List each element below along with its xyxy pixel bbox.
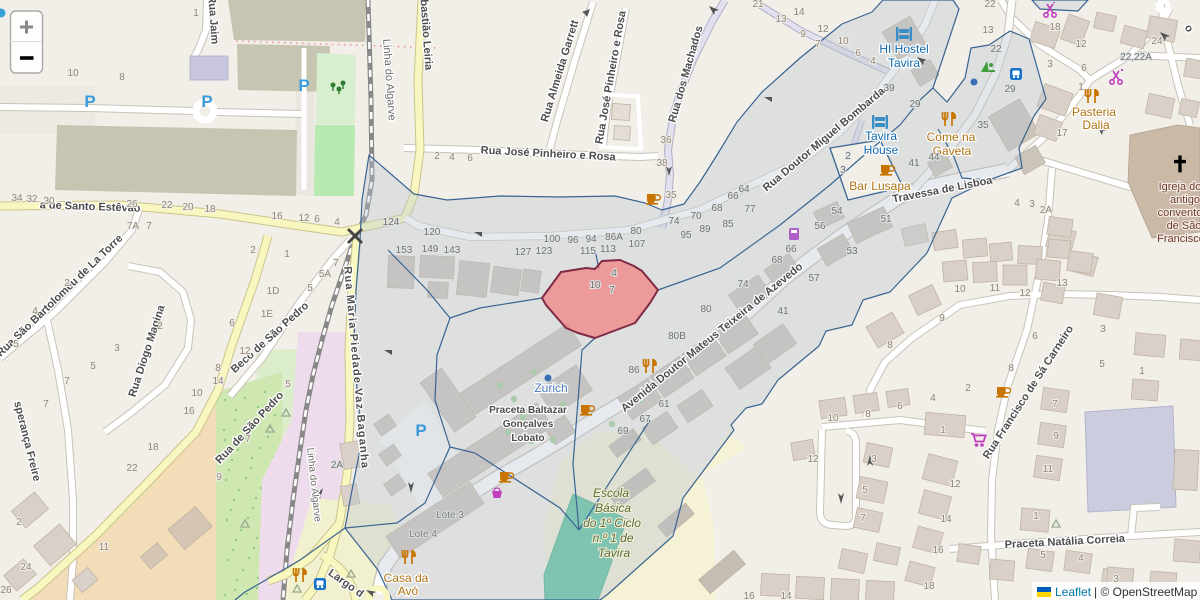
svg-text:do 1º Ciclo: do 1º Ciclo <box>583 516 641 530</box>
svg-text:80B: 80B <box>668 331 686 342</box>
svg-text:Tavira: Tavira <box>598 546 631 560</box>
svg-text:1D: 1D <box>267 286 280 297</box>
svg-text:22: 22 <box>984 0 996 10</box>
svg-text:68: 68 <box>771 255 783 266</box>
svg-text:4: 4 <box>611 268 617 279</box>
svg-text:7: 7 <box>245 434 251 445</box>
svg-text:Gonçalves: Gonçalves <box>503 419 554 430</box>
svg-text:17: 17 <box>1056 128 1068 139</box>
svg-text:10: 10 <box>827 413 839 424</box>
svg-text:Avó: Avó <box>398 584 419 598</box>
svg-text:11: 11 <box>990 283 1001 294</box>
svg-text:2: 2 <box>434 151 440 162</box>
svg-text:7: 7 <box>860 513 866 524</box>
svg-text:89: 89 <box>699 224 711 235</box>
svg-text:6: 6 <box>1032 331 1038 342</box>
svg-text:3: 3 <box>1047 59 1053 70</box>
svg-text:10: 10 <box>837 36 849 47</box>
svg-text:13: 13 <box>775 14 787 25</box>
svg-text:8: 8 <box>887 340 893 351</box>
svg-text:74: 74 <box>737 279 749 290</box>
svg-text:7: 7 <box>609 285 615 296</box>
svg-text:3: 3 <box>1100 324 1106 335</box>
svg-text:6: 6 <box>229 318 235 329</box>
svg-text:4: 4 <box>1078 553 1084 564</box>
svg-text:30: 30 <box>43 196 55 207</box>
svg-text:5: 5 <box>862 485 868 496</box>
svg-text:5: 5 <box>285 379 291 390</box>
svg-text:5: 5 <box>1099 359 1105 370</box>
svg-text:16: 16 <box>743 591 755 600</box>
svg-text:100: 100 <box>544 234 561 245</box>
svg-text:66: 66 <box>785 244 797 255</box>
svg-text:153: 153 <box>396 245 413 256</box>
svg-text:3: 3 <box>840 165 846 176</box>
svg-text:20: 20 <box>182 202 194 213</box>
svg-text:10: 10 <box>954 284 966 295</box>
svg-text:Escola: Escola <box>593 486 629 500</box>
svg-text:5: 5 <box>13 339 19 350</box>
svg-text:18: 18 <box>1049 22 1061 33</box>
svg-text:24: 24 <box>20 562 32 573</box>
svg-text:✝: ✝ <box>1171 152 1189 177</box>
svg-text:1: 1 <box>193 8 199 19</box>
svg-text:12: 12 <box>1075 39 1087 50</box>
svg-text:6: 6 <box>855 48 861 59</box>
svg-text:22,22A: 22,22A <box>1120 52 1152 63</box>
svg-text:7: 7 <box>815 39 821 50</box>
svg-text:39: 39 <box>883 83 895 94</box>
svg-text:64: 64 <box>738 184 750 195</box>
svg-text:24: 24 <box>1151 36 1163 47</box>
svg-text:10: 10 <box>67 68 79 79</box>
svg-text:2: 2 <box>157 321 163 332</box>
svg-text:9: 9 <box>939 313 945 324</box>
svg-text:P: P <box>201 92 212 111</box>
svg-text:14: 14 <box>780 591 792 600</box>
svg-text:5: 5 <box>307 283 313 294</box>
svg-text:41: 41 <box>777 306 789 317</box>
svg-text:56: 56 <box>814 221 826 232</box>
svg-text:2: 2 <box>16 517 22 528</box>
svg-text:8: 8 <box>865 409 871 420</box>
svg-text:70: 70 <box>690 211 702 222</box>
svg-text:12: 12 <box>239 346 251 357</box>
svg-text:14: 14 <box>212 376 224 387</box>
svg-text:1: 1 <box>1139 366 1145 377</box>
svg-text:6: 6 <box>467 153 473 164</box>
svg-text:53: 53 <box>846 246 858 257</box>
svg-text:7: 7 <box>43 399 49 410</box>
svg-text:26: 26 <box>126 199 138 210</box>
svg-text:P: P <box>84 92 95 111</box>
svg-text:66: 66 <box>727 191 739 202</box>
svg-text:n.º 1 de: n.º 1 de <box>592 531 633 545</box>
svg-text:6: 6 <box>1081 63 1087 74</box>
svg-text:68: 68 <box>711 203 723 214</box>
svg-text:Lote 4: Lote 4 <box>409 529 437 540</box>
svg-text:4: 4 <box>870 56 876 67</box>
svg-text:House: House <box>864 143 899 157</box>
svg-text:convento: convento <box>1158 207 1200 219</box>
svg-text:12: 12 <box>949 479 961 490</box>
svg-text:Tavira: Tavira <box>888 56 920 70</box>
svg-text:P: P <box>298 76 309 95</box>
svg-text:9: 9 <box>800 29 806 40</box>
svg-text:8: 8 <box>1008 363 1014 374</box>
svg-text:44: 44 <box>928 152 940 163</box>
svg-text:35: 35 <box>665 190 677 201</box>
svg-text:11: 11 <box>99 542 110 553</box>
svg-text:4: 4 <box>334 217 340 228</box>
svg-text:| © OpenStreetMap: | © OpenStreetMap <box>1094 585 1198 599</box>
svg-text:16: 16 <box>271 211 283 222</box>
svg-text:54: 54 <box>831 206 843 217</box>
svg-text:29: 29 <box>1004 84 1016 95</box>
svg-text:2: 2 <box>965 383 971 394</box>
svg-text:21: 21 <box>752 0 764 10</box>
svg-text:13: 13 <box>982 25 994 36</box>
svg-text:18: 18 <box>923 581 935 592</box>
svg-text:8: 8 <box>215 363 221 374</box>
svg-text:12: 12 <box>807 454 819 465</box>
svg-text:5: 5 <box>1040 550 1046 561</box>
svg-text:32: 32 <box>26 194 38 205</box>
svg-text:7: 7 <box>333 258 339 269</box>
svg-text:22: 22 <box>126 463 138 474</box>
svg-text:Pasteria: Pasteria <box>1072 105 1116 119</box>
svg-text:4: 4 <box>1014 198 1020 209</box>
svg-text:12: 12 <box>1019 288 1031 299</box>
svg-text:85: 85 <box>722 219 734 230</box>
svg-text:5A: 5A <box>319 269 332 280</box>
svg-text:4: 4 <box>930 393 936 404</box>
svg-text:Lote 3: Lote 3 <box>436 510 464 521</box>
svg-text:120: 120 <box>424 227 441 238</box>
svg-text:1: 1 <box>284 249 290 260</box>
svg-text:127: 127 <box>515 247 532 258</box>
svg-text:124: 124 <box>383 217 400 228</box>
svg-text:14: 14 <box>793 7 805 18</box>
svg-text:12: 12 <box>817 24 829 35</box>
svg-text:57: 57 <box>808 273 820 284</box>
svg-text:4: 4 <box>449 152 455 163</box>
svg-text:115: 115 <box>580 246 596 257</box>
svg-text:10: 10 <box>191 388 203 399</box>
svg-text:3: 3 <box>1029 199 1035 210</box>
svg-text:Tavira: Tavira <box>865 129 897 143</box>
svg-text:9: 9 <box>216 472 222 483</box>
svg-text:18: 18 <box>147 442 159 453</box>
svg-text:6: 6 <box>314 214 320 225</box>
svg-text:9: 9 <box>1053 431 1059 442</box>
svg-text:86: 86 <box>628 365 640 376</box>
svg-text:Francisco: Francisco <box>1157 233 1200 245</box>
svg-text:1: 1 <box>940 425 946 436</box>
svg-text:69: 69 <box>617 426 629 437</box>
svg-text:Praceta Baltazar: Praceta Baltazar <box>489 405 567 416</box>
svg-text:1: 1 <box>1033 511 1039 522</box>
svg-text:3: 3 <box>114 343 120 354</box>
svg-text:77: 77 <box>744 204 756 215</box>
svg-text:143: 143 <box>444 245 461 256</box>
svg-text:80: 80 <box>700 304 712 315</box>
svg-text:95: 95 <box>680 230 692 241</box>
svg-text:12: 12 <box>298 213 310 224</box>
svg-text:94: 94 <box>585 234 597 245</box>
svg-text:35: 35 <box>977 120 989 131</box>
svg-text:26: 26 <box>0 585 12 596</box>
svg-text:22: 22 <box>161 200 173 211</box>
svg-text:14: 14 <box>940 514 952 525</box>
svg-text:de São: de São <box>1167 220 1200 232</box>
svg-text:61: 61 <box>658 399 670 410</box>
svg-text:HI Hostel: HI Hostel <box>879 42 928 56</box>
svg-text:7: 7 <box>64 376 70 387</box>
svg-text:antigo: antigo <box>1170 194 1200 206</box>
svg-text:4: 4 <box>32 306 38 317</box>
svg-text:7A: 7A <box>127 221 140 232</box>
svg-text:41: 41 <box>908 158 920 169</box>
svg-text:5: 5 <box>90 361 96 372</box>
svg-text:1E: 1E <box>261 309 274 320</box>
svg-text:96: 96 <box>567 235 579 246</box>
svg-text:16: 16 <box>932 545 944 556</box>
svg-text:11: 11 <box>1043 464 1054 475</box>
svg-text:51: 51 <box>880 214 892 225</box>
svg-text:Casa da: Casa da <box>384 571 429 585</box>
svg-text:34: 34 <box>11 193 23 204</box>
svg-text:Dalia: Dalia <box>1082 118 1110 132</box>
svg-text:18: 18 <box>204 204 216 215</box>
svg-text:3: 3 <box>871 454 877 465</box>
svg-text:80: 80 <box>630 226 642 237</box>
svg-text:16: 16 <box>183 406 195 417</box>
svg-text:Lobato: Lobato <box>511 433 544 444</box>
svg-text:7: 7 <box>1052 399 1058 410</box>
svg-text:74: 74 <box>668 216 680 227</box>
svg-text:Leaflet: Leaflet <box>1055 585 1092 599</box>
svg-text:149: 149 <box>422 244 439 255</box>
svg-text:10: 10 <box>589 280 601 291</box>
svg-text:38: 38 <box>656 158 668 169</box>
svg-text:2A: 2A <box>331 460 344 471</box>
svg-text:22: 22 <box>990 44 1002 55</box>
svg-text:107: 107 <box>629 239 646 250</box>
svg-text:Zurich: Zurich <box>534 381 567 395</box>
svg-text:Come na: Come na <box>927 130 976 144</box>
svg-text:13: 13 <box>1056 278 1068 289</box>
svg-text:86A: 86A <box>605 232 623 243</box>
svg-text:8: 8 <box>119 72 125 83</box>
svg-text:P: P <box>415 421 426 440</box>
svg-text:29: 29 <box>909 99 921 110</box>
svg-text:Igreja do: Igreja do <box>1159 181 1200 193</box>
svg-text:2A: 2A <box>1040 205 1053 216</box>
svg-text:6: 6 <box>897 401 903 412</box>
svg-text:Básica: Básica <box>595 501 631 515</box>
svg-text:67: 67 <box>639 414 651 425</box>
svg-text:2: 2 <box>845 151 851 162</box>
svg-text:2: 2 <box>250 245 256 256</box>
svg-text:36: 36 <box>660 135 672 146</box>
svg-text:7: 7 <box>146 221 152 232</box>
svg-text:123: 123 <box>536 246 553 257</box>
svg-text:Bar Lusapa: Bar Lusapa <box>849 179 911 193</box>
svg-text:2: 2 <box>64 278 70 289</box>
svg-text:113: 113 <box>600 244 616 255</box>
svg-text:1: 1 <box>1078 82 1084 93</box>
